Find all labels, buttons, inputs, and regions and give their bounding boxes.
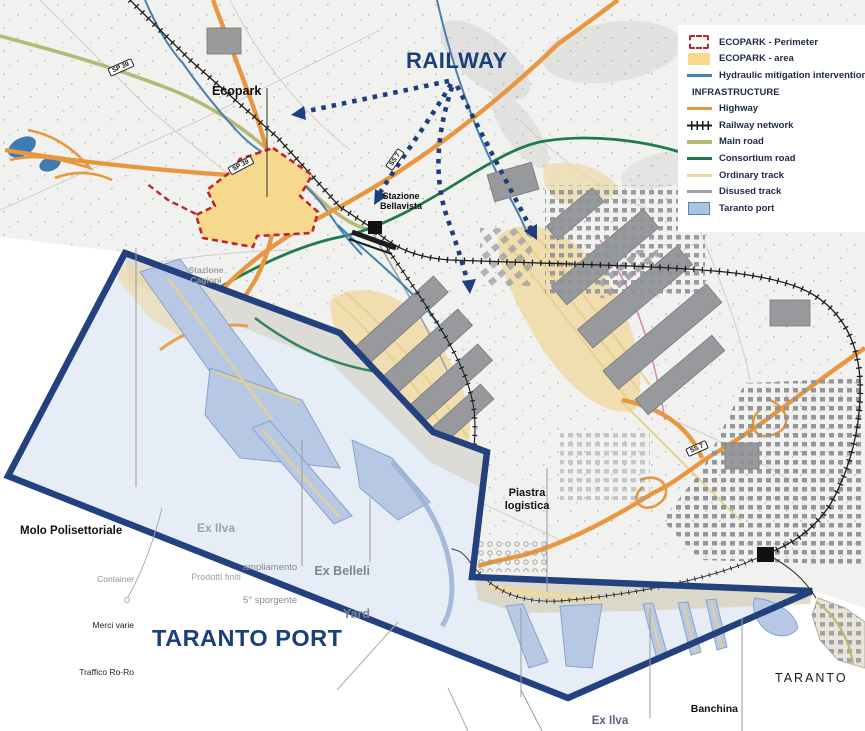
ecopark-label: Ecopark: [212, 84, 261, 98]
ecopark-perimeter-swatch: [686, 35, 712, 49]
legend-item-railway-network: Railway network: [686, 117, 865, 134]
legend-header-infrastructure: INFRASTRUCTURE: [686, 84, 865, 101]
map-canvas: RAILWAY TARANTO PORT Ecopark SP 39 SP 39…: [0, 0, 865, 731]
ampliamento-label: ampliamento 5° sporgente: [234, 541, 306, 617]
legend-item-ecopark-perimeter: ECOPARK - Perimeter: [686, 34, 865, 51]
stazione-bellavista-label: StazioneBellavista: [376, 191, 426, 212]
main-road-swatch: [686, 140, 712, 145]
hydraulic-line-swatch: [686, 74, 712, 77]
taranto-city-label: TARANTO: [775, 671, 848, 685]
ordinary-track-swatch: [686, 174, 712, 177]
ex-belleli-yard-label: Ex Belleli Yard: [304, 535, 370, 636]
ex-ilva-east-label: Ex Ilva Rinfuse solide Prodotti finiti: [572, 678, 648, 731]
highway-line-swatch: [686, 107, 712, 110]
legend-item-main-road: Main road: [686, 134, 865, 151]
piastra-logistica-label: Piastralogistica: [494, 487, 560, 512]
consortium-road-swatch: [686, 157, 712, 160]
molo-polisettoriale-label: Molo Polisettoriale Container Merci vari…: [20, 488, 134, 696]
legend-item-taranto-port: Taranto port: [686, 200, 865, 217]
ecopark-area-swatch: [686, 53, 712, 65]
eni-label: Eni Rinfuse liquide: [452, 697, 518, 731]
stazione-cagioni-label: StazioneCagioni: [184, 266, 228, 286]
legend-item-disused-track: Disused track: [686, 183, 865, 200]
disused-track-swatch: [686, 190, 712, 193]
legend-item-ecopark-area: ECOPARK - area: [686, 51, 865, 68]
legend: ECOPARK - Perimeter ECOPARK - area Hydra…: [678, 25, 865, 232]
taranto-port-swatch: [686, 202, 712, 215]
banchina-libera-label: Banchina libera Ro-Ro/Ro-Pax Crociere Me…: [660, 666, 738, 731]
legend-item-highway: Highway: [686, 100, 865, 117]
railway-title: RAILWAY: [406, 48, 508, 73]
railway-line-swatch: [686, 121, 712, 130]
legend-item-hydraulic: Hydraulic mitigation interventions: [686, 67, 865, 84]
legend-item-consortium-road: Consortium road: [686, 150, 865, 167]
legend-item-ordinary-track: Ordinary track: [686, 167, 865, 184]
